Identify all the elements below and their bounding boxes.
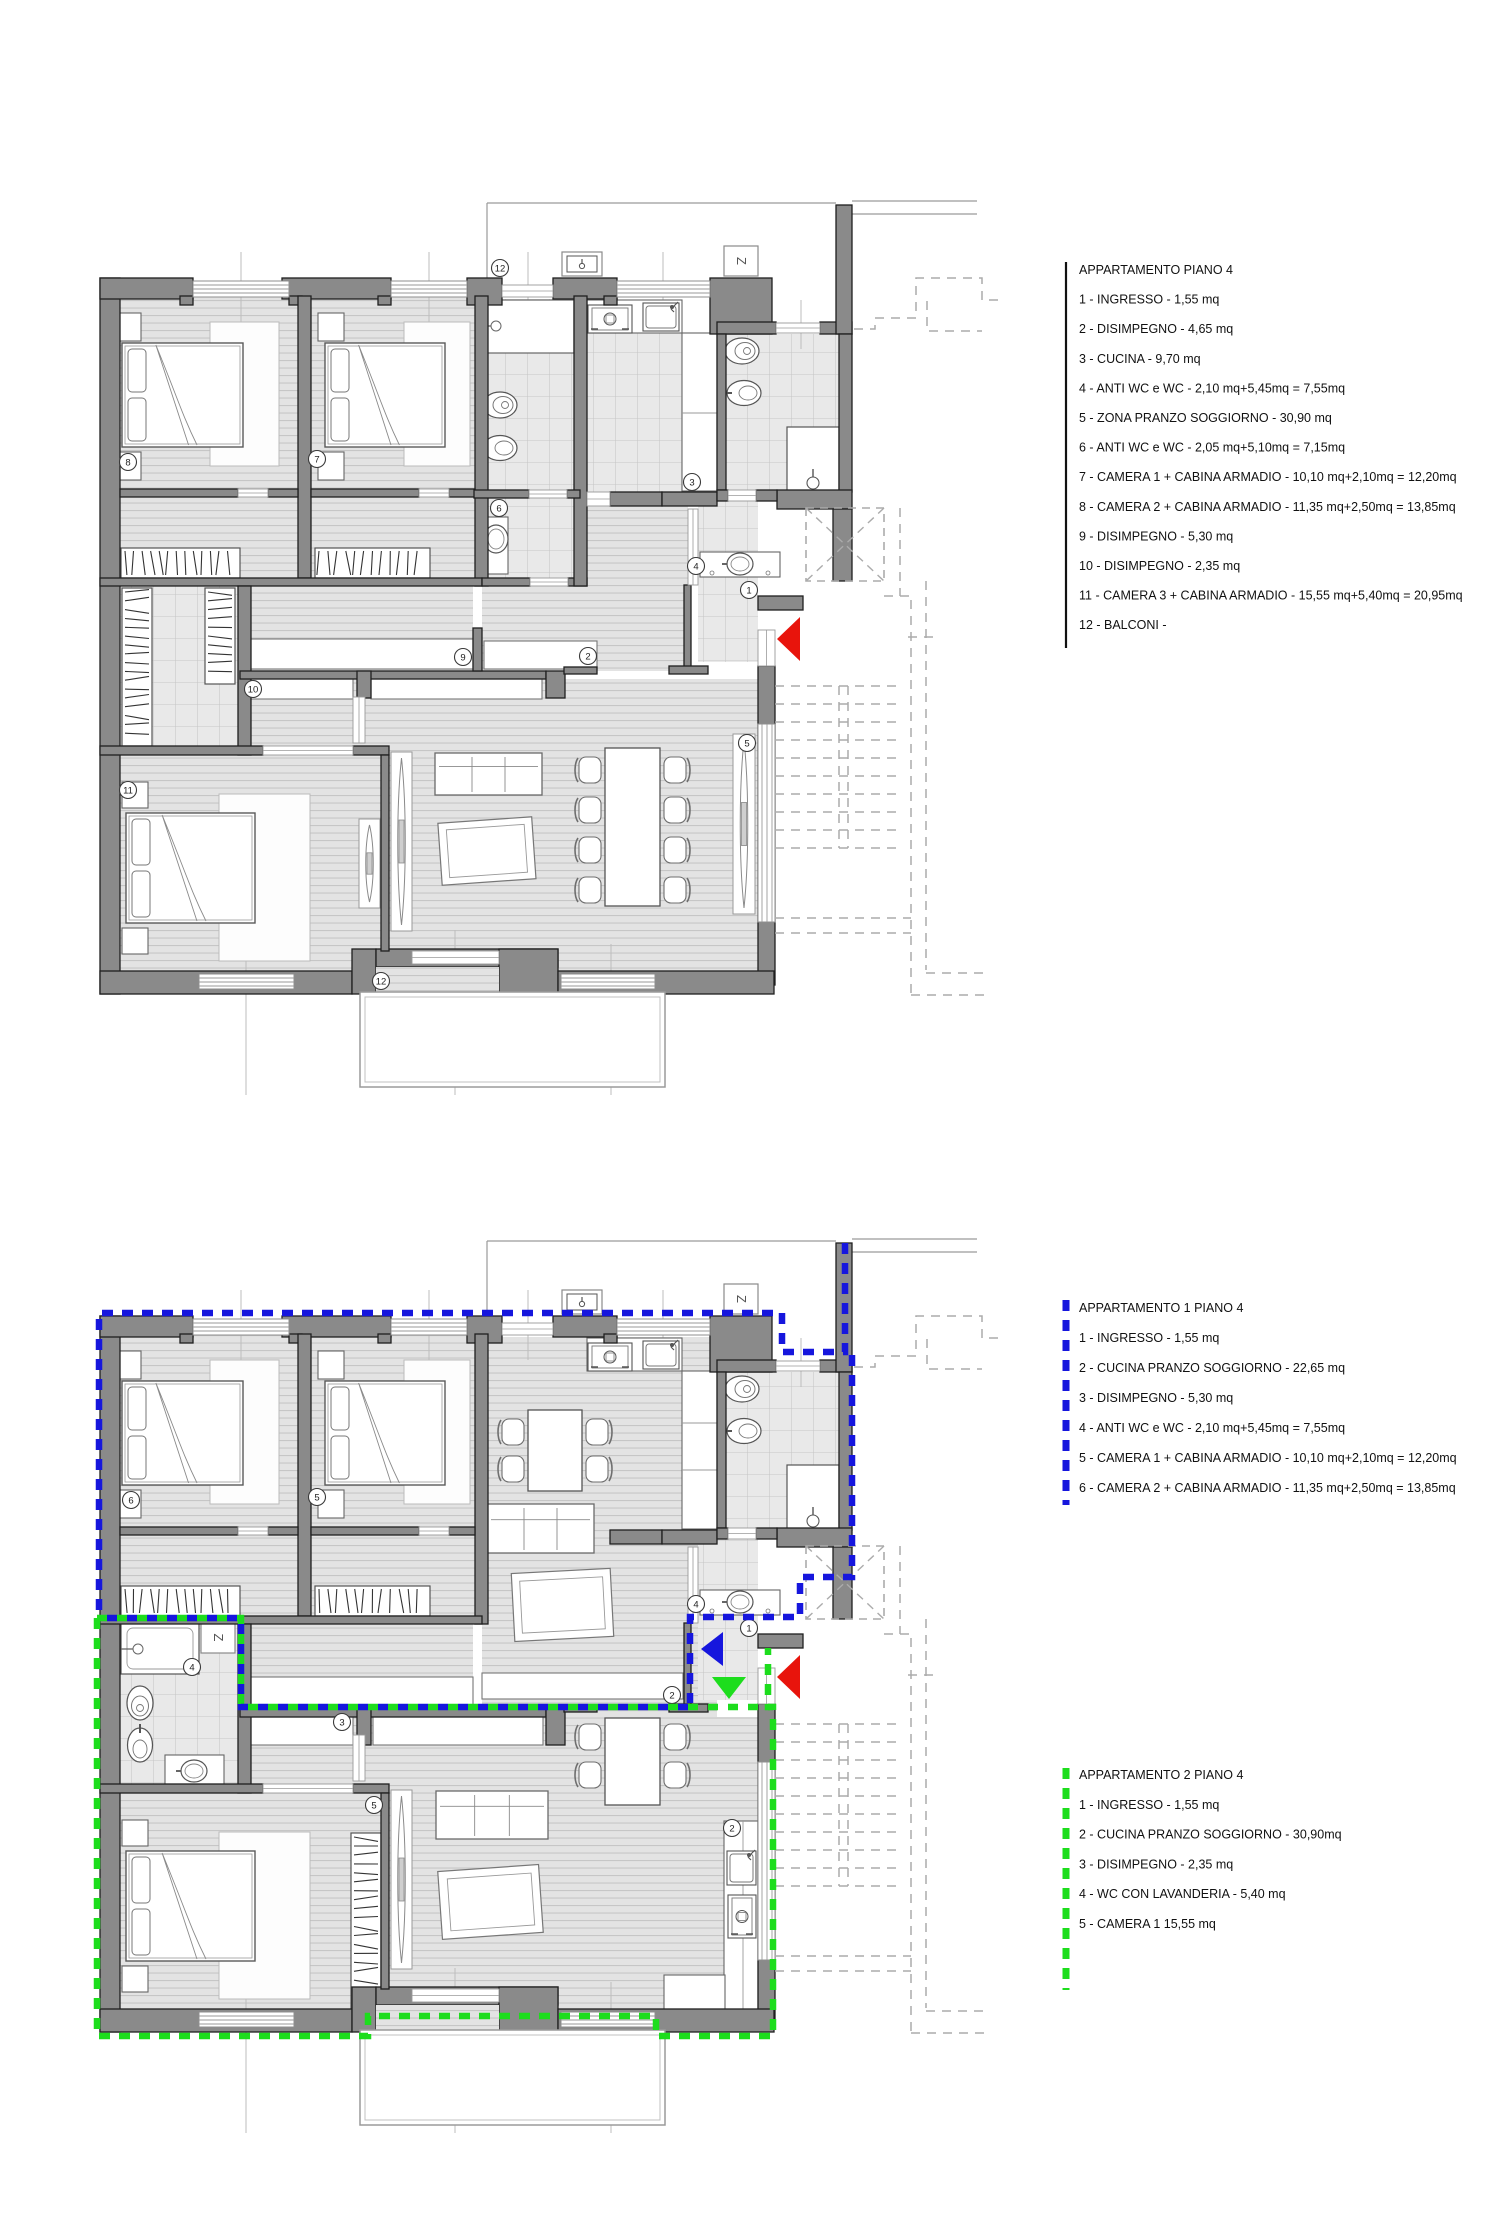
svg-text:8 - CAMERA 2 + CABINA ARMADIO: 8 - CAMERA 2 + CABINA ARMADIO - 11,35 mq… xyxy=(1079,500,1456,514)
svg-text:6 - ANTI WC e WC - 2,05 mq+5,1: 6 - ANTI WC e WC - 2,05 mq+5,10mq = 7,15… xyxy=(1079,441,1345,455)
svg-text:5: 5 xyxy=(371,1800,376,1811)
svg-text:3: 3 xyxy=(339,1717,344,1728)
svg-text:1: 1 xyxy=(746,585,751,596)
svg-text:2: 2 xyxy=(669,1690,674,1701)
svg-text:8: 8 xyxy=(125,457,130,468)
svg-text:9 - DISIMPEGNO - 5,30 mq: 9 - DISIMPEGNO - 5,30 mq xyxy=(1079,529,1233,543)
svg-text:4 - ANTI WC e WC - 2,10 mq+5,4: 4 - ANTI WC e WC - 2,10 mq+5,45mq = 7,55… xyxy=(1079,381,1345,395)
svg-text:3: 3 xyxy=(689,477,694,488)
svg-text:5 - CAMERA 1 + CABINA ARMADIO: 5 - CAMERA 1 + CABINA ARMADIO - 10,10 mq… xyxy=(1079,1451,1457,1465)
svg-text:7 - CAMERA 1 + CABINA ARMADIO: 7 - CAMERA 1 + CABINA ARMADIO - 10,10 mq… xyxy=(1079,470,1457,484)
svg-text:6: 6 xyxy=(496,503,501,514)
svg-text:6 - CAMERA 2 + CABINA ARMADIO: 6 - CAMERA 2 + CABINA ARMADIO - 11,35 mq… xyxy=(1079,1481,1456,1495)
svg-text:5: 5 xyxy=(744,738,749,749)
svg-text:5 - CAMERA 1 15,55 mq: 5 - CAMERA 1 15,55 mq xyxy=(1079,1917,1216,1931)
svg-text:5: 5 xyxy=(314,1492,319,1503)
svg-text:4: 4 xyxy=(693,1599,698,1610)
svg-text:2: 2 xyxy=(585,651,590,662)
svg-text:4 - ANTI WC e WC - 2,10 mq+5,4: 4 - ANTI WC e WC - 2,10 mq+5,45mq = 7,55… xyxy=(1079,1421,1345,1435)
svg-text:9: 9 xyxy=(460,652,465,663)
svg-text:6: 6 xyxy=(128,1495,133,1506)
svg-text:APPARTAMENTO PIANO 4: APPARTAMENTO PIANO 4 xyxy=(1079,263,1233,277)
svg-text:2: 2 xyxy=(729,1823,734,1834)
svg-text:11: 11 xyxy=(123,785,133,796)
svg-text:3 - CUCINA - 9,70 mq: 3 - CUCINA - 9,70 mq xyxy=(1079,352,1201,366)
svg-text:APPARTAMENTO 2 PIANO 4: APPARTAMENTO 2 PIANO 4 xyxy=(1079,1768,1243,1782)
svg-text:2 - CUCINA PRANZO SOGGIORNO -: 2 - CUCINA PRANZO SOGGIORNO - 30,90mq xyxy=(1079,1828,1342,1842)
svg-text:Z: Z xyxy=(734,257,749,265)
svg-text:4: 4 xyxy=(693,561,698,572)
svg-text:Z: Z xyxy=(211,1634,226,1642)
svg-text:11 - CAMERA 3 + CABINA ARMADIO: 11 - CAMERA 3 + CABINA ARMADIO - 15,55 m… xyxy=(1079,589,1463,603)
svg-text:3 - DISIMPEGNO - 2,35 mq: 3 - DISIMPEGNO - 2,35 mq xyxy=(1079,1857,1233,1871)
svg-text:12: 12 xyxy=(376,976,387,987)
svg-text:12: 12 xyxy=(495,263,506,274)
svg-text:10: 10 xyxy=(248,684,259,695)
svg-text:2 - CUCINA PRANZO SOGGIORNO -: 2 - CUCINA PRANZO SOGGIORNO - 22,65 mq xyxy=(1079,1361,1345,1375)
svg-text:1 - INGRESSO - 1,55 mq: 1 - INGRESSO - 1,55 mq xyxy=(1079,1331,1219,1345)
svg-text:4 - WC CON LAVANDERIA - 5,40 m: 4 - WC CON LAVANDERIA - 5,40 mq xyxy=(1079,1887,1286,1901)
svg-text:1: 1 xyxy=(746,1623,751,1634)
svg-text:1 - INGRESSO - 1,55 mq: 1 - INGRESSO - 1,55 mq xyxy=(1079,293,1219,307)
svg-text:Z: Z xyxy=(734,1295,749,1303)
svg-text:10 - DISIMPEGNO - 2,35 mq: 10 - DISIMPEGNO - 2,35 mq xyxy=(1079,559,1240,573)
svg-text:APPARTAMENTO 1 PIANO 4: APPARTAMENTO 1 PIANO 4 xyxy=(1079,1301,1243,1315)
svg-text:1 - INGRESSO - 1,55 mq: 1 - INGRESSO - 1,55 mq xyxy=(1079,1798,1219,1812)
svg-text:2 - DISIMPEGNO - 4,65 mq: 2 - DISIMPEGNO - 4,65 mq xyxy=(1079,322,1233,336)
svg-text:4: 4 xyxy=(189,1662,194,1673)
svg-text:5 - ZONA PRANZO SOGGIORNO - 30: 5 - ZONA PRANZO SOGGIORNO - 30,90 mq xyxy=(1079,411,1332,425)
svg-text:7: 7 xyxy=(314,454,319,465)
svg-text:3 - DISIMPEGNO - 5,30 mq: 3 - DISIMPEGNO - 5,30 mq xyxy=(1079,1391,1233,1405)
svg-text:12 - BALCONI -: 12 - BALCONI - xyxy=(1079,618,1167,632)
